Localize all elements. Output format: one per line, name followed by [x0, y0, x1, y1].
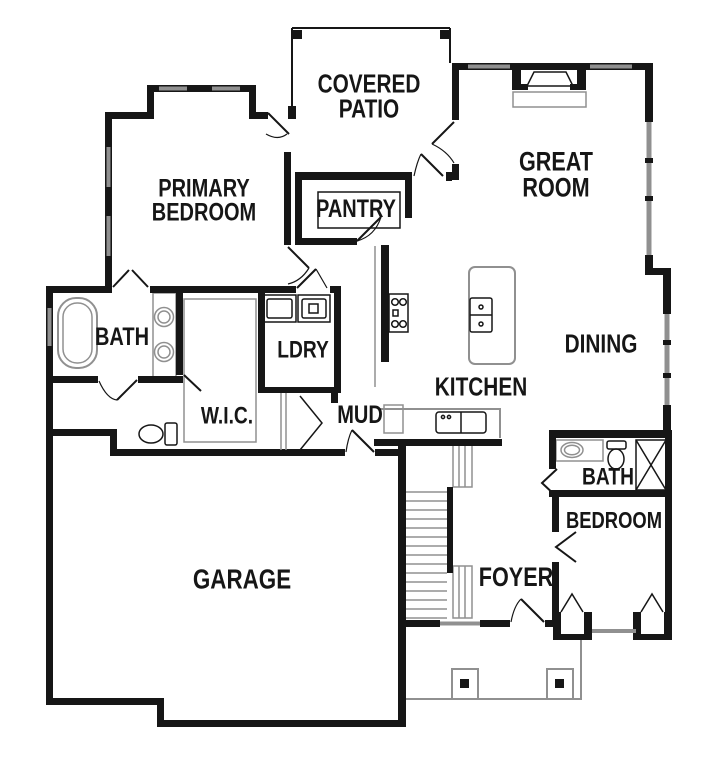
bifold-closet-icon: [281, 393, 322, 450]
toilet-icon: [607, 441, 626, 469]
wic-shelf-outline: [184, 299, 256, 442]
bathtub-icon: [58, 298, 97, 368]
kitchen-sink-icon: [436, 412, 486, 433]
patio-post-icon: [293, 30, 302, 39]
window-bay-icon: [592, 594, 672, 640]
island-sink-icon: [470, 298, 492, 332]
dryer-icon: [298, 295, 330, 322]
patio-post-icon: [440, 30, 449, 39]
shower-icon: [636, 440, 666, 490]
floor-plan-drawing: [0, 0, 724, 768]
covered-patio-outline: [292, 28, 450, 110]
washer-icon: [263, 295, 296, 322]
range-cooktop-icon: [389, 294, 408, 332]
floor-plan: COVERED PATIO GREAT ROOM PRIMARY BEDROOM…: [0, 0, 724, 768]
porch-post-icon: [547, 669, 573, 699]
double-vanity-sinks-icon: [153, 293, 176, 377]
walls: [46, 63, 672, 727]
pantry-shelf-outline: [318, 192, 400, 228]
windows: [48, 65, 672, 626]
hall-bath-vanity-sink-icon: [556, 440, 603, 461]
stairs-icon: [405, 441, 472, 618]
porch-post-icon: [452, 669, 478, 699]
fireplace-hearth: [513, 92, 586, 107]
toilet-icon: [139, 423, 177, 445]
fireplace-icon: [512, 70, 586, 90]
